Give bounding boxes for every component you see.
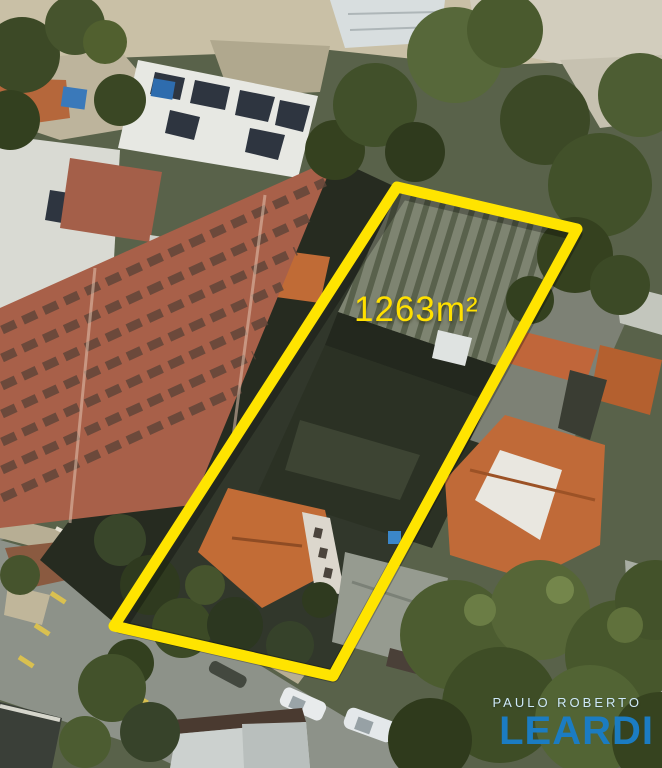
- agency-name-top: PAULO ROBERTO: [492, 696, 642, 709]
- aerial-3d-photo: [0, 0, 662, 768]
- agency-name-main: LEARDI: [492, 711, 654, 751]
- lot-area-label: 1263m²: [354, 290, 479, 330]
- penthouse: [60, 158, 162, 242]
- property-listing-photo: 1263m² PAULO ROBERTO LEARDI: [0, 0, 662, 768]
- agency-logo: PAULO ROBERTO LEARDI: [492, 696, 654, 751]
